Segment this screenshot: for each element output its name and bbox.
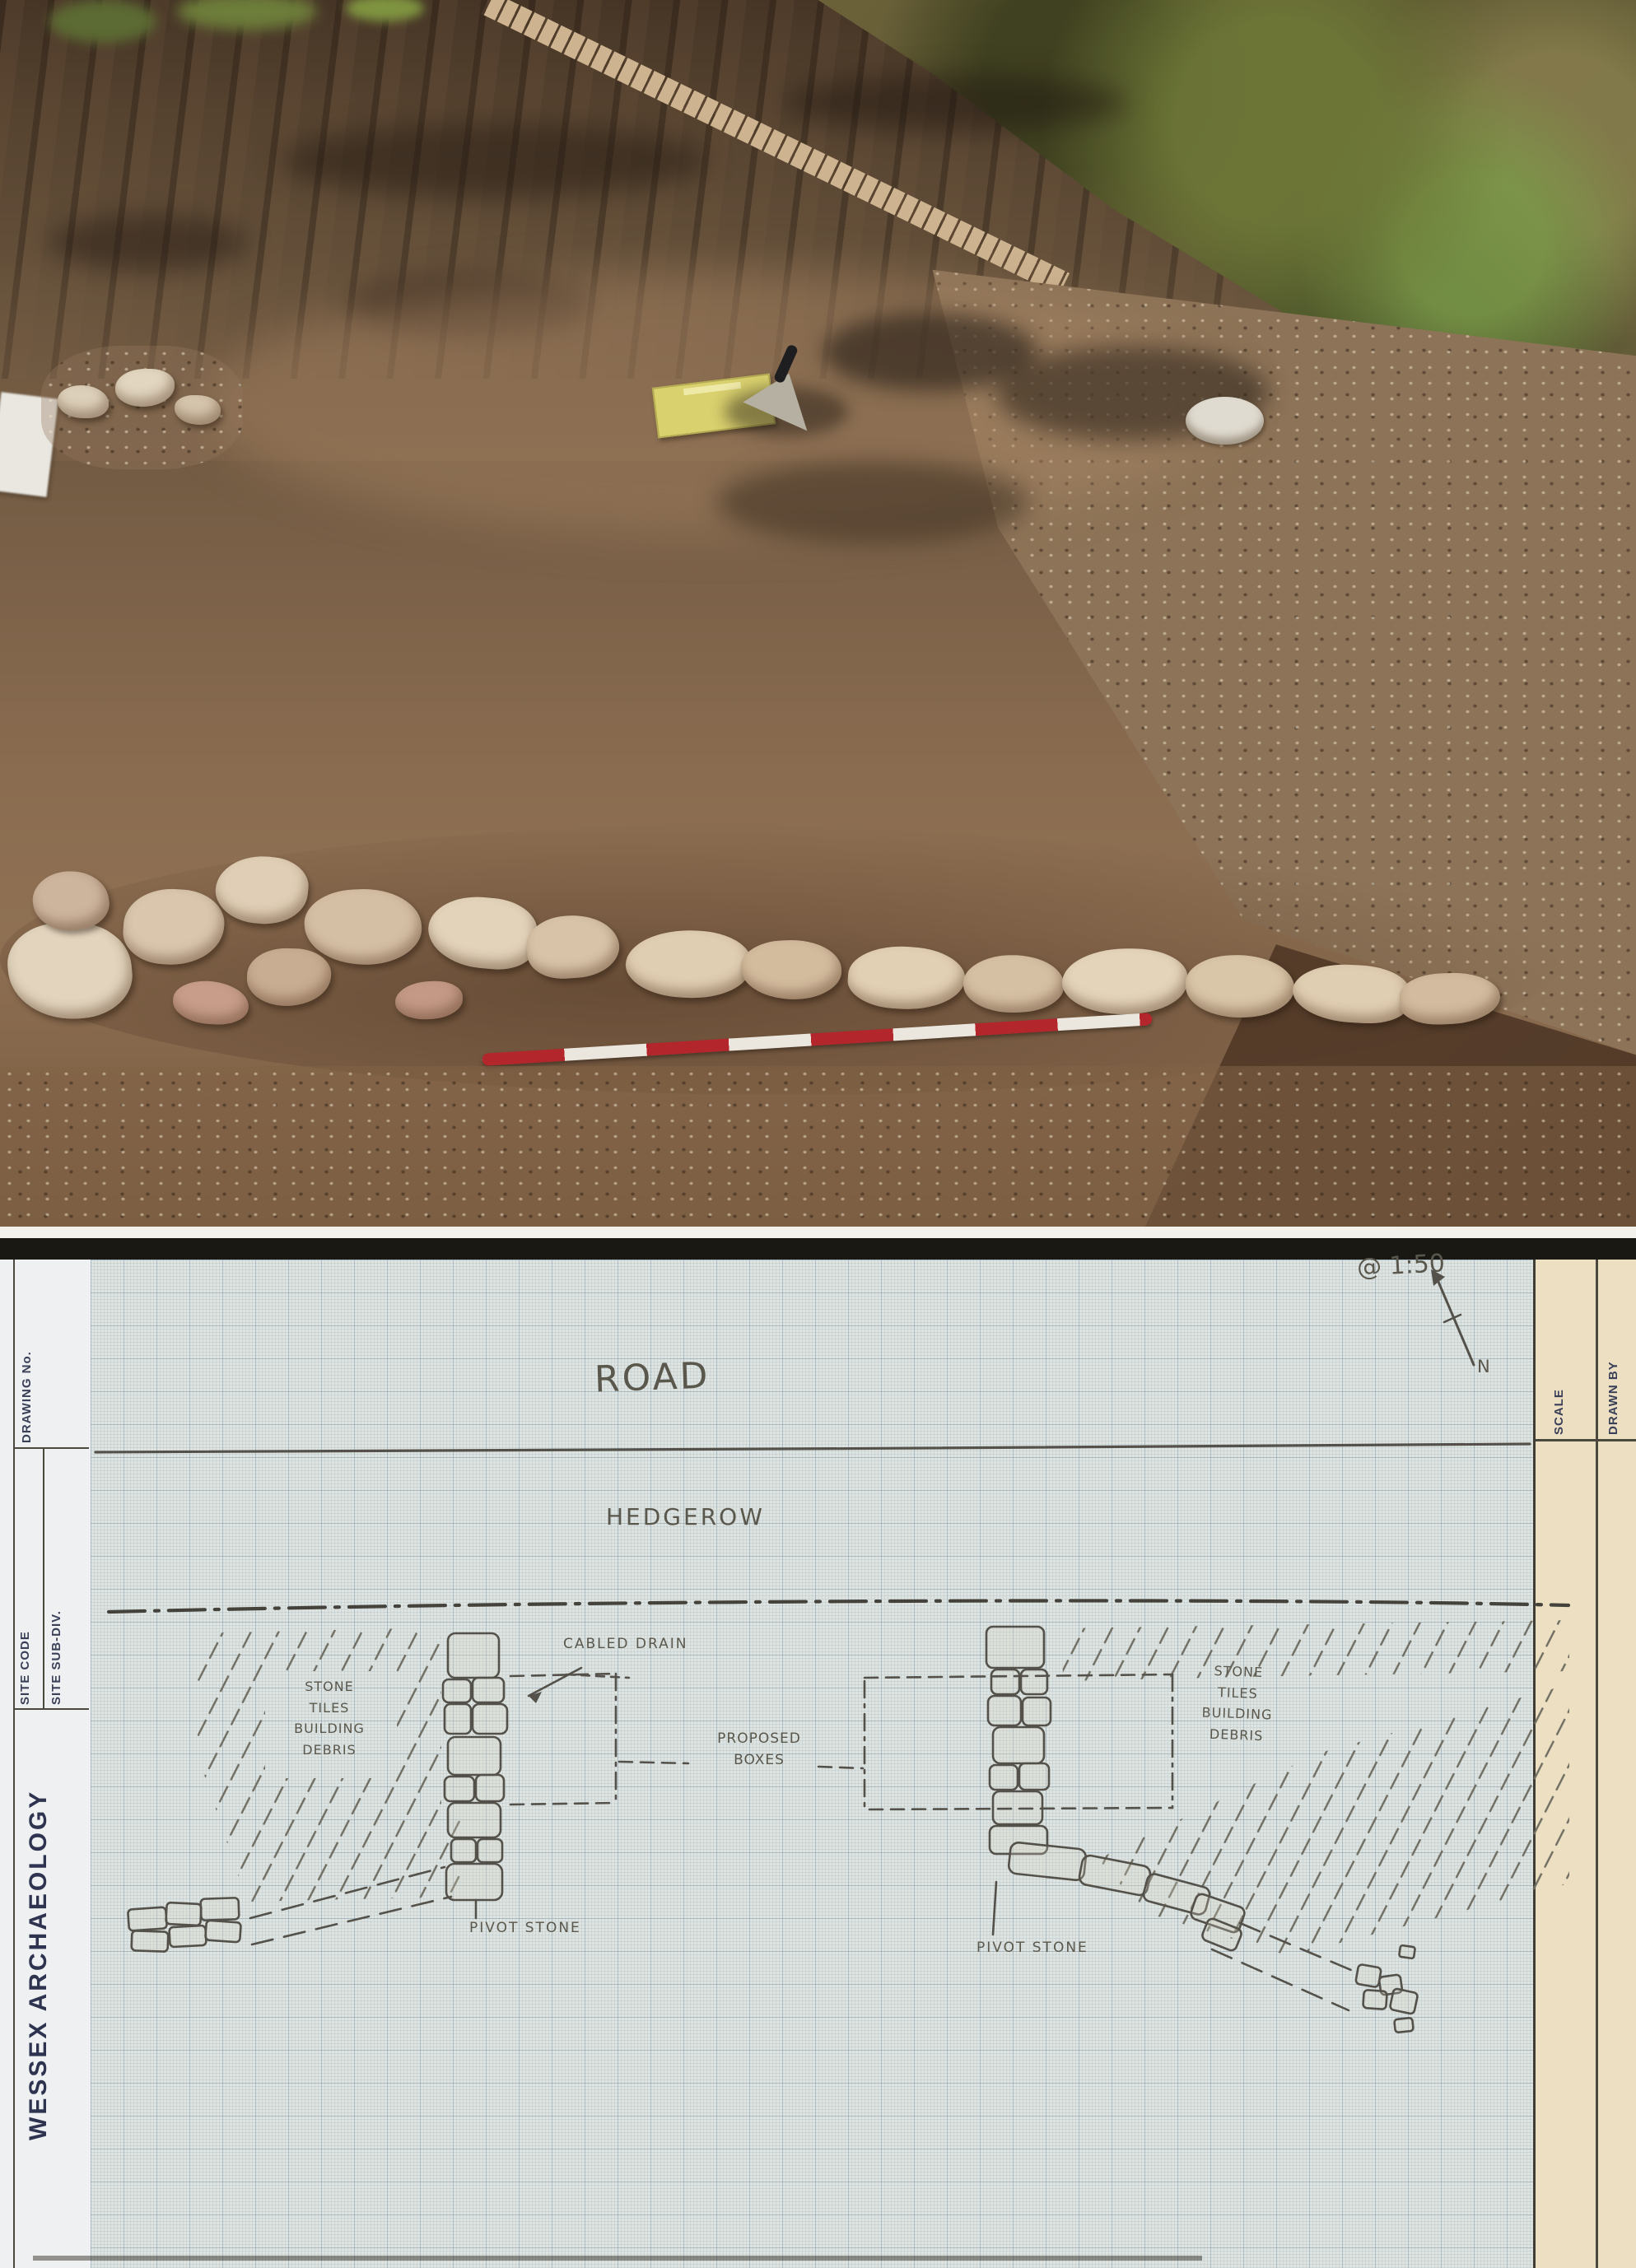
pivot-tick-right bbox=[993, 1882, 996, 1935]
debris-label-right: STONE TILES BUILDING DEBRIS bbox=[1174, 1659, 1300, 1748]
soil-patch bbox=[49, 214, 247, 272]
soil-patch bbox=[280, 123, 708, 198]
site-plan-scan: DRAWING No. SITE CODE SITE SUB-DIV. WESS… bbox=[0, 1227, 1636, 2268]
scale-note-label: @ 1:50 bbox=[1356, 1249, 1446, 1283]
foreground-gravel bbox=[0, 1066, 1636, 1227]
hedgerow-label: HEDGEROW bbox=[606, 1503, 765, 1530]
cabled-drain-leader bbox=[529, 1668, 581, 1696]
far-left-stones bbox=[128, 1898, 241, 1952]
debris-label-left: STONE TILES BUILDING DEBRIS bbox=[262, 1676, 397, 1760]
hedgerow-boundary-line bbox=[109, 1600, 1568, 1612]
north-label: N bbox=[1477, 1357, 1490, 1376]
scan-bottom-edge bbox=[33, 2256, 1202, 2261]
scale-label: SCALE bbox=[1552, 1357, 1566, 1435]
road-label: ROAD bbox=[594, 1355, 711, 1401]
drawn-by-label: DRAWN BY bbox=[1606, 1316, 1620, 1435]
site-subdiv-label: SITE SUB-DIV. bbox=[49, 1470, 63, 1705]
hatch-right-upper bbox=[1059, 1620, 1569, 1681]
cabled-drain-label: CABLED DRAIN bbox=[563, 1636, 687, 1652]
bottom-right-stones bbox=[1355, 1945, 1418, 2033]
pivot-stone-label-right: PIVOT STONE bbox=[976, 1940, 1088, 1956]
white-bowl bbox=[1186, 397, 1264, 445]
weed-tuft bbox=[49, 0, 156, 43]
pivot-stone-label-left: PIVOT STONE bbox=[469, 1920, 581, 1936]
site-code-label: SITE CODE bbox=[18, 1470, 32, 1705]
hatch-right-lower bbox=[1095, 1684, 1569, 1956]
road-edge-line bbox=[96, 1444, 1530, 1452]
screenshot: DRAWING No. SITE CODE SITE SUB-DIV. WESS… bbox=[0, 0, 1636, 2268]
hatch-left bbox=[198, 1628, 461, 1902]
drawing-no-label: DRAWING No. bbox=[20, 1299, 34, 1443]
rubble-stone bbox=[58, 385, 109, 418]
soil-patch bbox=[782, 74, 1128, 132]
organisation-label: WESSEX ARCHAEOLOGY bbox=[25, 1753, 53, 2140]
proposed-boxes-label: PROPOSED BOXES bbox=[693, 1729, 825, 1771]
north-arrow-shaft bbox=[1436, 1276, 1474, 1365]
excavation-photo bbox=[0, 0, 1636, 1227]
left-wall-stones bbox=[443, 1633, 507, 1900]
charcoal-patch bbox=[716, 461, 1029, 543]
